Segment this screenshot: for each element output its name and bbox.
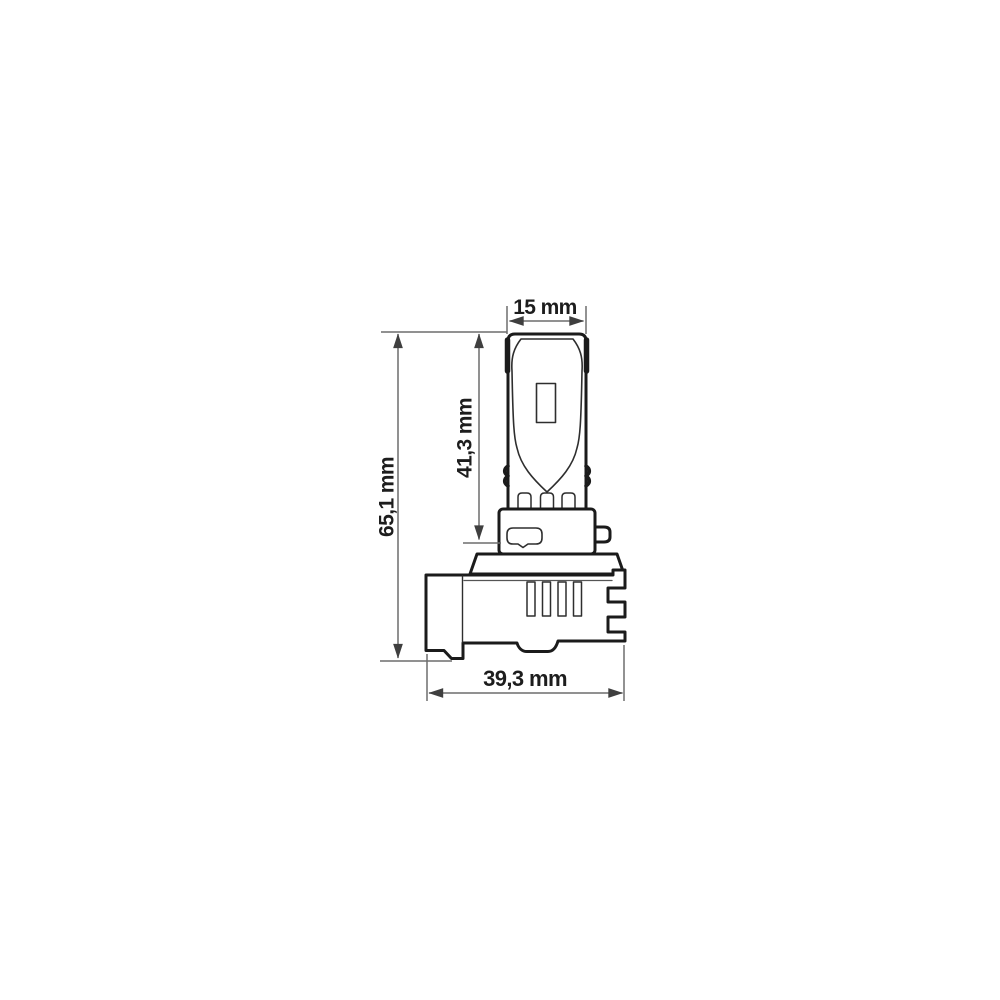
prong-middle [541, 493, 554, 509]
base-housing [426, 570, 625, 659]
prong-left [518, 493, 531, 509]
label-led-tube-height: 41,3 mm [453, 398, 476, 478]
base-slot [527, 582, 535, 616]
bulb-outline-group [426, 334, 625, 659]
drawing-canvas: 15 mm 41,3 mm 65,1 mm 39,3 mm [0, 0, 1000, 1000]
flange-skirt [470, 554, 624, 574]
tube-prongs [518, 493, 575, 509]
base-slot [574, 582, 582, 616]
technical-drawing: 15 mm 41,3 mm 65,1 mm 39,3 mm [0, 0, 1000, 1000]
label-overall-height: 65,1 mm [375, 457, 398, 537]
prong-right [562, 493, 575, 509]
collar-tab [597, 527, 611, 542]
base-slot [558, 582, 566, 616]
label-bulb-width: 15 mm [513, 296, 577, 319]
collar-window [507, 528, 542, 548]
base-slot [543, 582, 551, 616]
label-base-width: 39,3 mm [483, 666, 567, 691]
led-chip [537, 384, 556, 423]
